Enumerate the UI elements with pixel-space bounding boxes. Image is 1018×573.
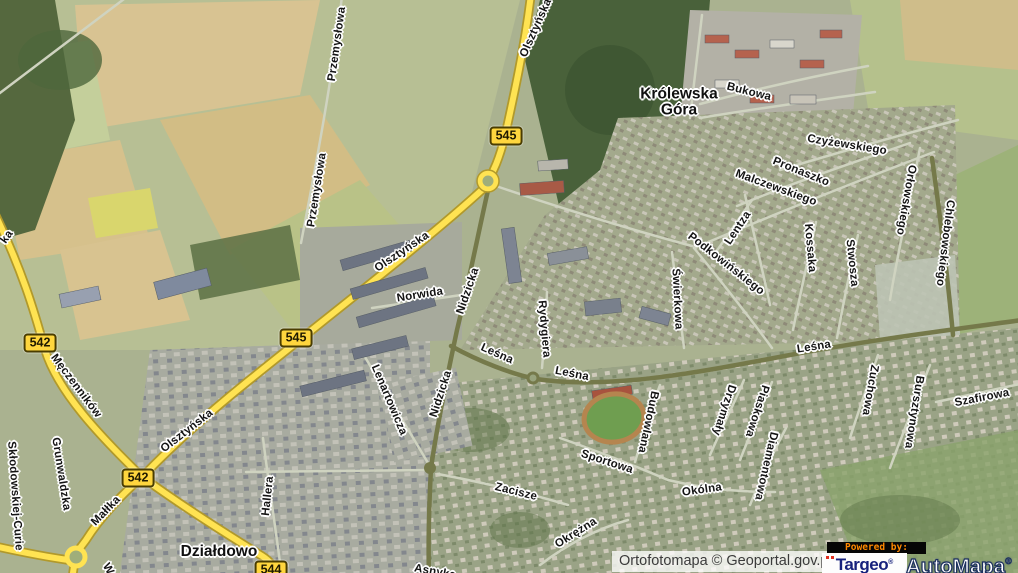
- street-label: Szafirowa: [954, 387, 1011, 409]
- labels-layer: PrzemysłowaPrzemysłowaOlsztyńskaOlsztyńs…: [0, 0, 1018, 573]
- street-label: Czyżewskiego: [806, 133, 887, 157]
- street-label: W: [100, 561, 116, 573]
- street-label: Małłka: [89, 494, 123, 528]
- targeo-logo-text: Targeo: [836, 555, 888, 573]
- street-label: Hallera: [260, 476, 276, 517]
- attribution-text: Ortofotomapa © Geoportal.gov.pl: [612, 551, 839, 572]
- street-label: Stwosza: [844, 239, 861, 287]
- road-number-shield: 542: [24, 334, 57, 353]
- street-label: Lentza: [723, 209, 754, 247]
- street-label: Okrężna: [553, 516, 599, 551]
- street-label: Diamentowa: [752, 431, 779, 502]
- road-number-shield: 545: [490, 127, 523, 146]
- place-label: Królewska Góra: [640, 87, 718, 120]
- targeo-logo[interactable]: Targeo®: [822, 553, 907, 573]
- place-label: Działdowo: [181, 544, 258, 560]
- map-viewport[interactable]: PrzemysłowaPrzemysłowaOlsztyńskaOlsztyńs…: [0, 0, 1018, 573]
- street-label: Nidzicka: [428, 369, 454, 419]
- street-label: Asnyka: [413, 562, 457, 573]
- street-label: Norwida: [396, 285, 444, 304]
- street-label: Leśna: [479, 342, 515, 367]
- street-label: Chlebowskiego: [934, 199, 957, 287]
- street-label: Grunwaldzka: [49, 437, 72, 512]
- street-label: Zuchowa: [860, 364, 881, 417]
- street-label: Zacisze: [494, 481, 539, 503]
- street-label: Męczenników: [48, 352, 104, 420]
- street-label: Drzymały: [710, 383, 738, 437]
- street-label: Leśna: [796, 338, 832, 355]
- automapa-logo-text: AutoMapa: [906, 555, 1005, 573]
- street-label: ka: [0, 228, 16, 246]
- road-number-shield: 545: [280, 329, 313, 348]
- targeo-dots-icon: [826, 556, 835, 559]
- street-label: Rydygiera: [536, 300, 553, 358]
- street-label: Sportowa: [579, 448, 634, 476]
- street-label: Budowlana: [636, 390, 661, 454]
- street-label: Olsztyńska: [373, 229, 432, 274]
- street-label: Przemysłowa: [326, 6, 348, 82]
- street-label: Świerkowa: [669, 268, 684, 330]
- street-label: Skłodowskiej-Curie: [5, 441, 25, 551]
- street-label: Bursztynowa: [902, 375, 925, 450]
- road-number-shield: 544: [255, 561, 288, 573]
- street-label: Olsztyńska: [159, 407, 216, 455]
- automapa-registered-mark: ®: [1005, 556, 1012, 566]
- road-number-shield: 542: [122, 469, 155, 488]
- street-label: Leśna: [554, 365, 590, 383]
- street-label: Przemysłowa: [305, 152, 329, 228]
- street-label: Nidzicka: [454, 266, 481, 316]
- street-label: Piaskowa: [743, 383, 771, 438]
- street-label: Lenartowicza: [369, 363, 409, 437]
- street-label: Okólna: [681, 481, 722, 498]
- targeo-registered-mark: ®: [888, 559, 893, 566]
- street-label: Kossaka: [802, 223, 818, 273]
- automapa-logo[interactable]: AutoMapa®: [906, 549, 1012, 573]
- street-label: Olsztyńska: [518, 0, 554, 59]
- street-label: Orłowskiego: [894, 164, 918, 236]
- street-label: Bukowa: [726, 81, 773, 104]
